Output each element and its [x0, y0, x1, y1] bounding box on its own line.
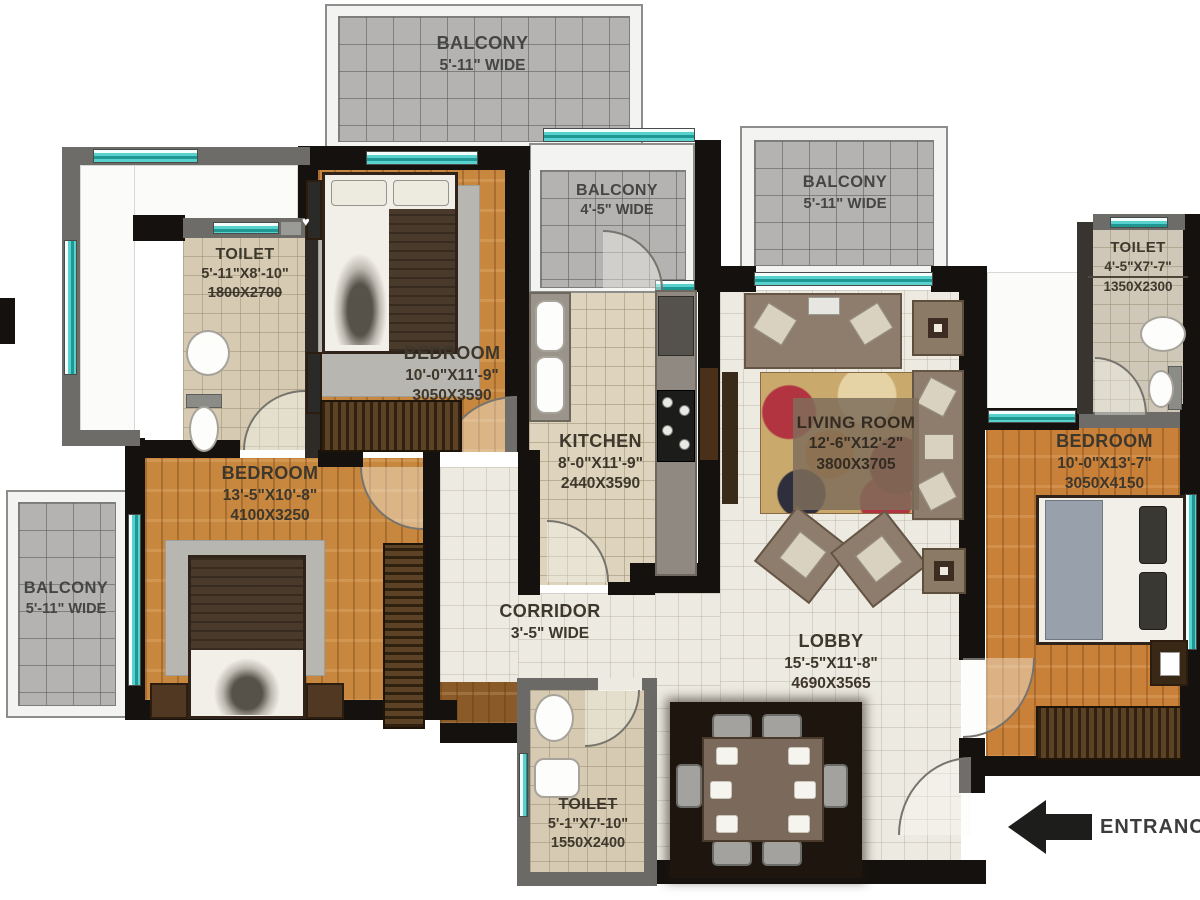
window	[366, 151, 478, 165]
toilet-bowl	[534, 758, 580, 798]
blanket	[389, 209, 455, 351]
blanket	[1045, 500, 1103, 640]
side-table	[912, 300, 964, 356]
dining-chair	[822, 764, 848, 808]
nightstand	[306, 683, 344, 719]
label-toilet-1: TOILET 5'-11"X8'-10" 1800X2700	[186, 244, 304, 303]
cushion	[753, 302, 798, 345]
appliance	[658, 296, 694, 356]
side-table	[922, 548, 966, 594]
dining-chair	[762, 840, 802, 866]
wall	[608, 582, 655, 595]
window	[1110, 217, 1168, 228]
nightstand	[1150, 640, 1188, 686]
sofa	[912, 370, 964, 520]
cushion	[849, 302, 894, 345]
cushion	[917, 471, 958, 512]
window	[1185, 494, 1197, 650]
window	[64, 240, 77, 375]
window	[988, 410, 1076, 423]
towel-rod	[280, 221, 302, 236]
pillow	[331, 180, 387, 206]
sink	[534, 694, 574, 742]
dining-chair	[712, 840, 752, 866]
label-toilet-right: TOILET 4'-5"X7'-7" 1350X2300	[1088, 238, 1188, 295]
entrance-arrow-icon	[1008, 800, 1046, 854]
wall	[0, 298, 15, 344]
tv-unit	[722, 372, 738, 504]
wall	[133, 215, 185, 241]
label-bedroom-left: BEDROOM 13'-5"X10'-8" 4100X3250	[185, 462, 355, 527]
blanket	[191, 558, 303, 650]
dining-chair	[676, 764, 702, 808]
label-toilet-bottom: TOILET 5'-1"X7'-10" 1550X2400	[523, 794, 653, 853]
label-balcony-top-left: BALCONY 5'-11" WIDE	[380, 32, 585, 76]
toilet-bowl	[1148, 370, 1174, 408]
label-corridor: CORRIDOR 3'-5" WIDE	[470, 600, 630, 644]
sink	[1140, 316, 1186, 352]
dining-table	[702, 737, 824, 842]
sink	[186, 330, 230, 376]
label-balcony-left: BALCONY 5'-11" WIDE	[10, 578, 122, 619]
bed-print	[209, 653, 285, 715]
window	[543, 128, 695, 142]
bed	[1036, 495, 1186, 645]
label-bedroom-top: BEDROOM 10'-0"X11'-9" 3050X3590	[372, 342, 532, 407]
wardrobe	[1036, 706, 1182, 760]
pillow	[393, 180, 449, 206]
lamp	[1160, 652, 1180, 676]
throw	[808, 297, 840, 315]
wall	[518, 450, 540, 595]
corridor-floor	[440, 467, 518, 682]
fridge	[700, 368, 718, 460]
label-balcony-top-right: BALCONY 5'-11" WIDE	[770, 172, 920, 214]
bed	[322, 172, 458, 354]
cushion	[779, 531, 827, 579]
toilet-bowl	[189, 406, 219, 452]
bed-print	[329, 245, 391, 345]
entrance-arrow-icon	[1044, 814, 1092, 840]
wall	[931, 266, 961, 292]
kitchen-sink	[535, 300, 565, 352]
deck-floor	[987, 272, 1080, 410]
window	[754, 272, 933, 286]
entrance-label: ENTRANCE	[1100, 816, 1200, 839]
cushion	[924, 434, 954, 460]
sofa	[744, 293, 902, 369]
wall	[62, 430, 140, 446]
cushion	[855, 535, 903, 583]
pillow	[1139, 572, 1167, 630]
kitchen-sink	[535, 356, 565, 414]
label-bedroom-right: BEDROOM 10'-0"X13'-7" 3050X4150	[1022, 430, 1187, 495]
cushion	[917, 377, 958, 418]
wall	[423, 450, 440, 702]
label-living-room: LIVING ROOM 12'-6"X12'-2" 3800X3705	[793, 398, 919, 510]
nightstand	[150, 683, 188, 719]
pillow	[1139, 506, 1167, 564]
window	[93, 149, 198, 163]
heart-icon: ♥	[302, 215, 310, 228]
floor-plan: ♥	[0, 0, 1200, 900]
window	[213, 222, 279, 234]
label-lobby: LOBBY 15'-5"X11'-8" 4690X3565	[756, 630, 906, 695]
open-area-floor	[80, 165, 135, 443]
wardrobe	[383, 543, 425, 729]
wall	[718, 266, 756, 292]
window	[128, 514, 141, 686]
wall	[440, 723, 518, 743]
dresser	[306, 180, 322, 240]
wardrobe	[320, 400, 462, 452]
label-balcony-top-mid: BALCONY 4'-5" WIDE	[552, 180, 682, 220]
label-kitchen: KITCHEN 8'-0"X11'-9" 2440X3590	[538, 430, 663, 495]
bed	[188, 555, 306, 719]
